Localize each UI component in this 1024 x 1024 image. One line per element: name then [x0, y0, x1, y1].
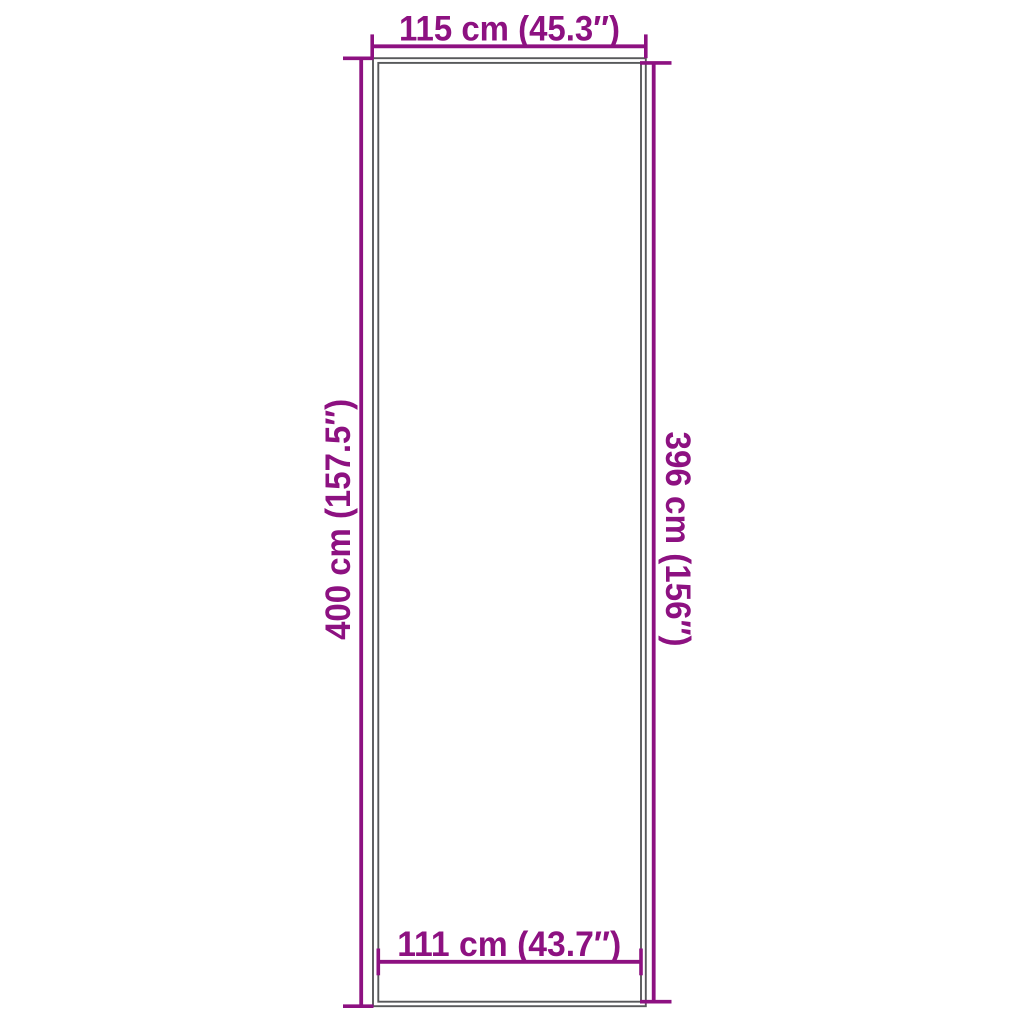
svg-text:400 cm (157.5″): 400 cm (157.5″) [319, 399, 358, 640]
svg-text:396 cm (156″): 396 cm (156″) [658, 432, 697, 647]
svg-text:115 cm (45.3″): 115 cm (45.3″) [399, 10, 620, 49]
svg-text:111 cm (43.7″): 111 cm (43.7″) [397, 925, 621, 964]
